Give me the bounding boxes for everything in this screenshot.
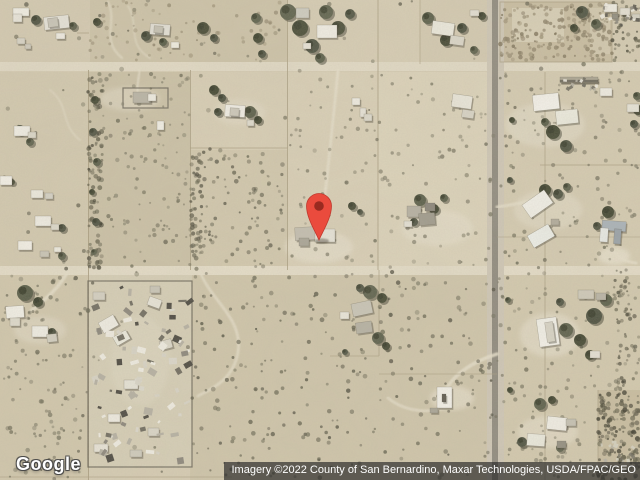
- satellite-imagery: [0, 0, 640, 480]
- attribution-text: Imagery ©2022 County of San Bernardino, …: [231, 464, 636, 476]
- google-logo[interactable]: Google: [16, 454, 81, 475]
- map-viewport[interactable]: Google Imagery ©2022 County of San Berna…: [0, 0, 640, 480]
- attribution-bar: Imagery ©2022 County of San Bernardino, …: [224, 462, 640, 480]
